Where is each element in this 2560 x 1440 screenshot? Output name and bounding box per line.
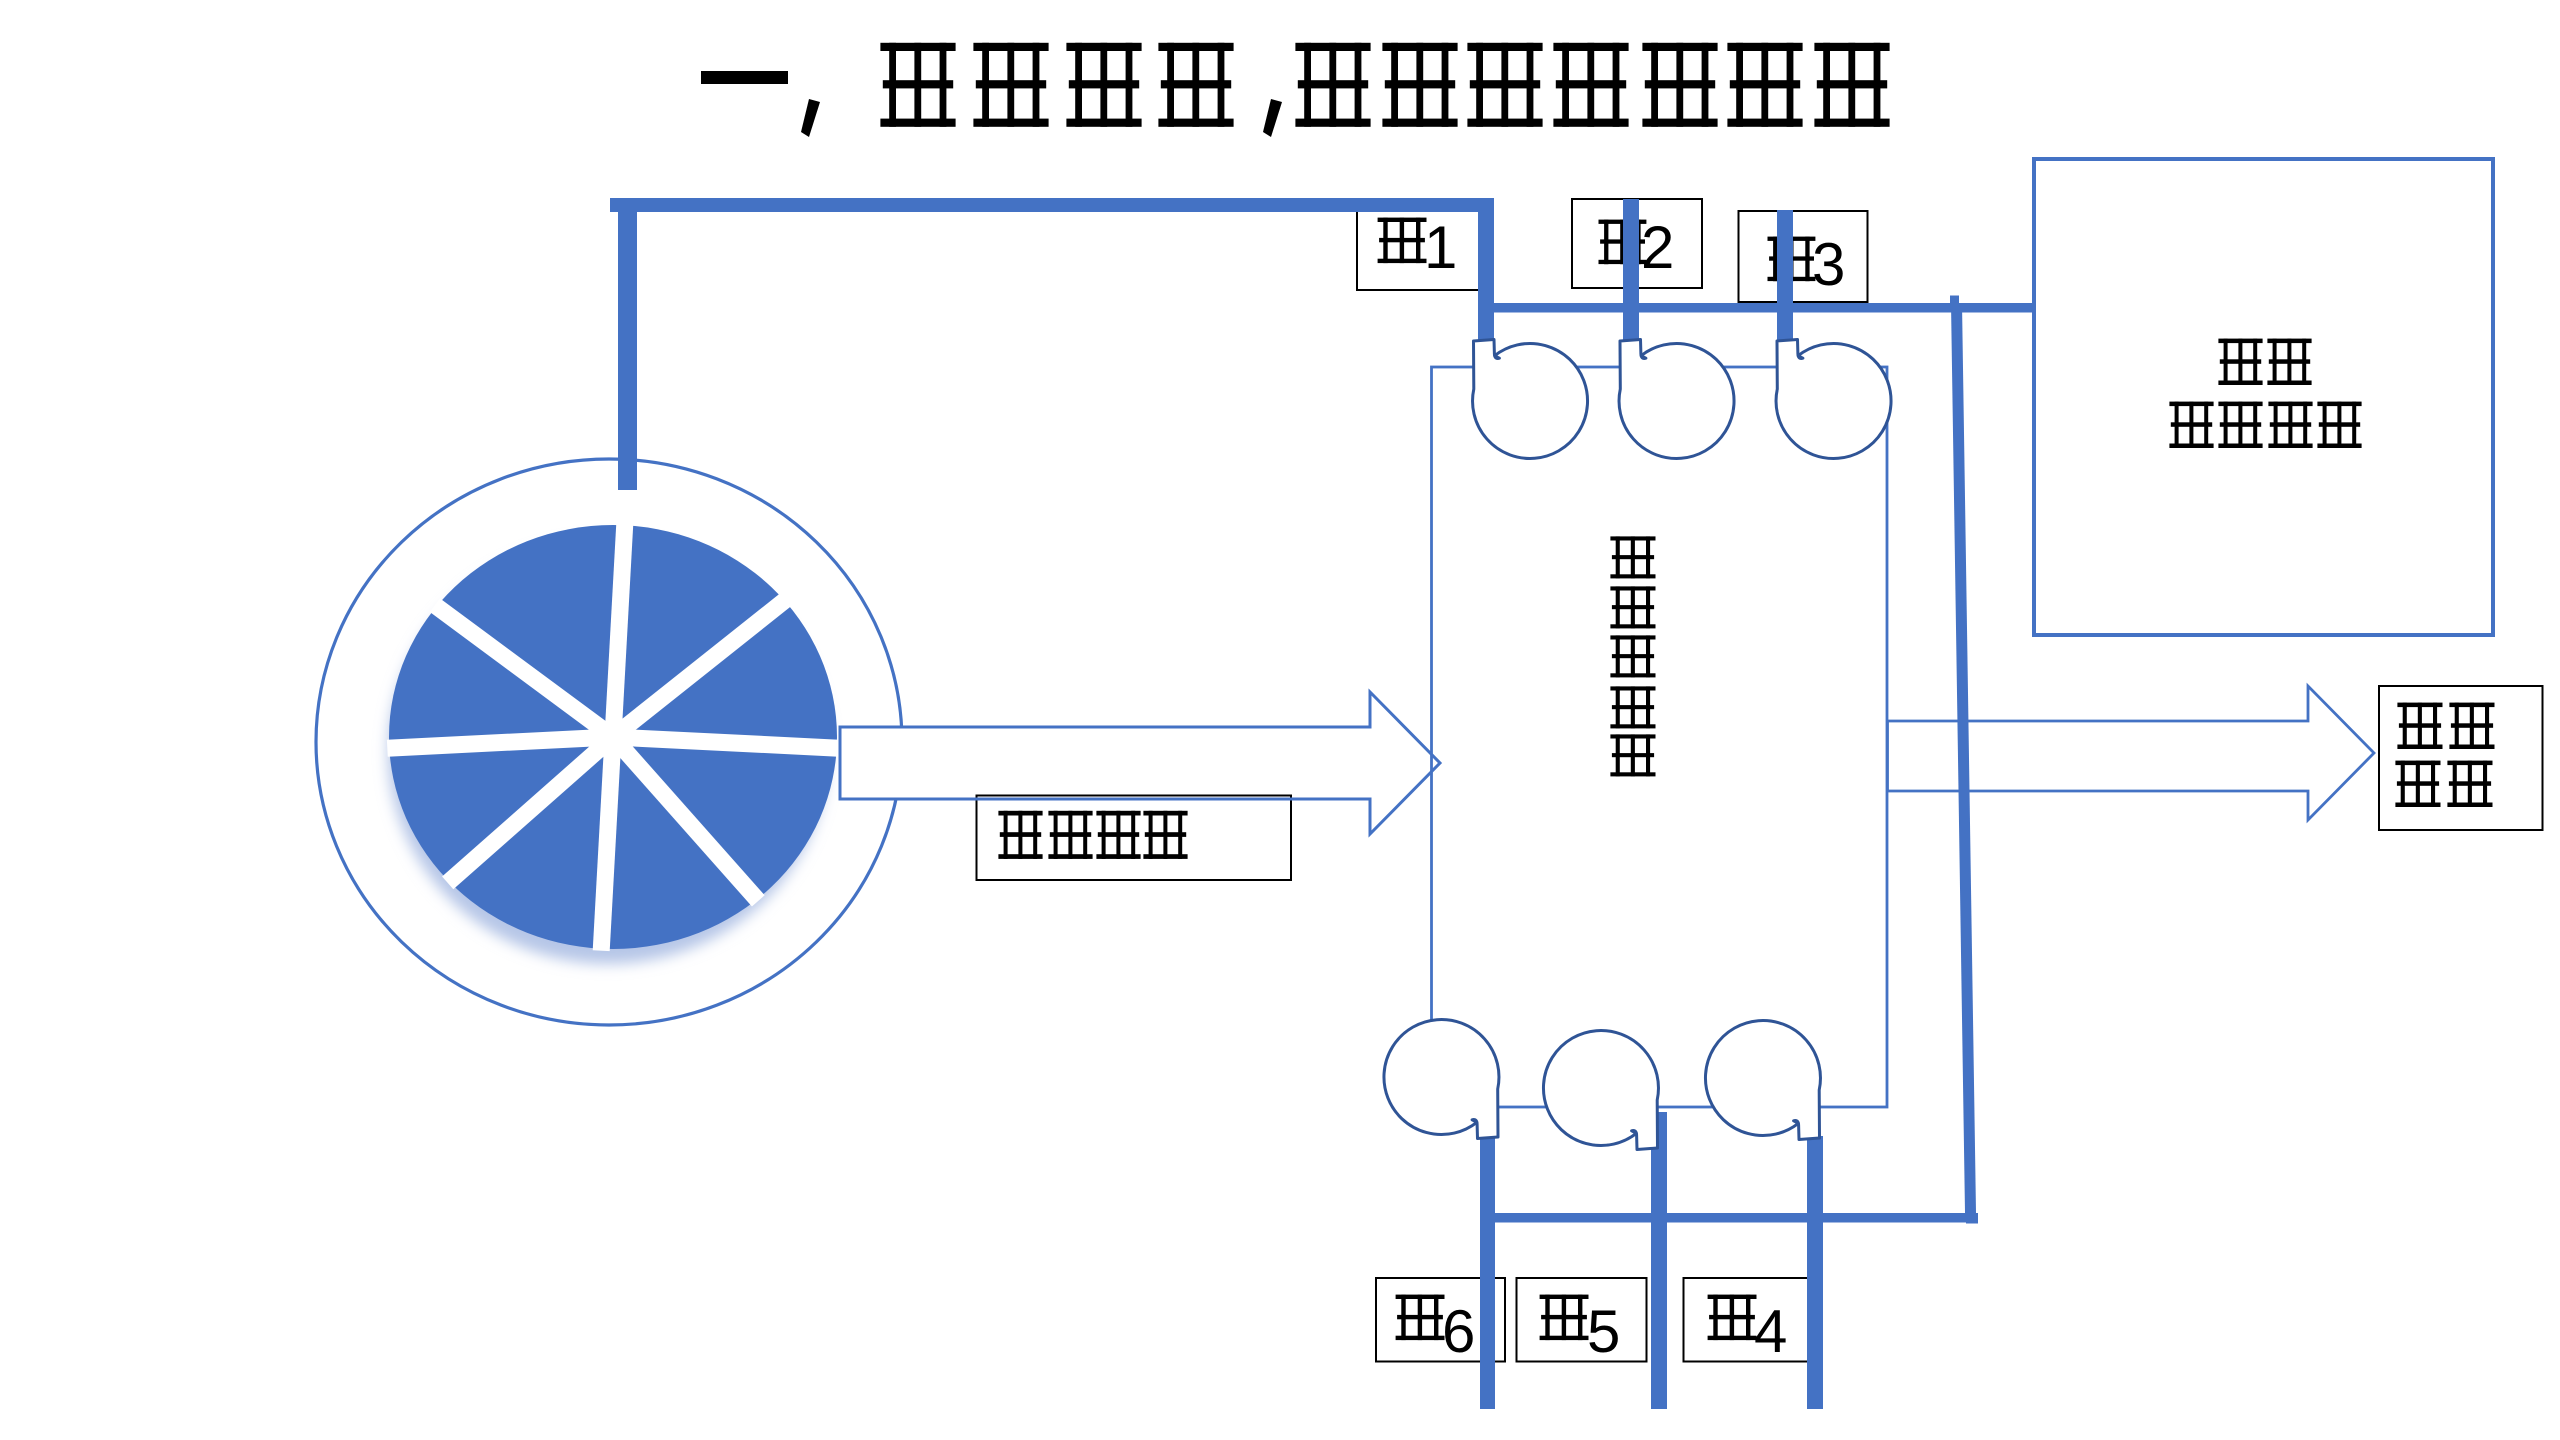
svg-text:1: 1 [1424,214,1457,281]
svg-text:4: 4 [1754,1298,1787,1365]
svg-text:5: 5 [1587,1298,1620,1365]
svg-text:3: 3 [1812,231,1845,298]
svg-text:6: 6 [1442,1298,1475,1365]
svg-text:2: 2 [1641,214,1674,281]
